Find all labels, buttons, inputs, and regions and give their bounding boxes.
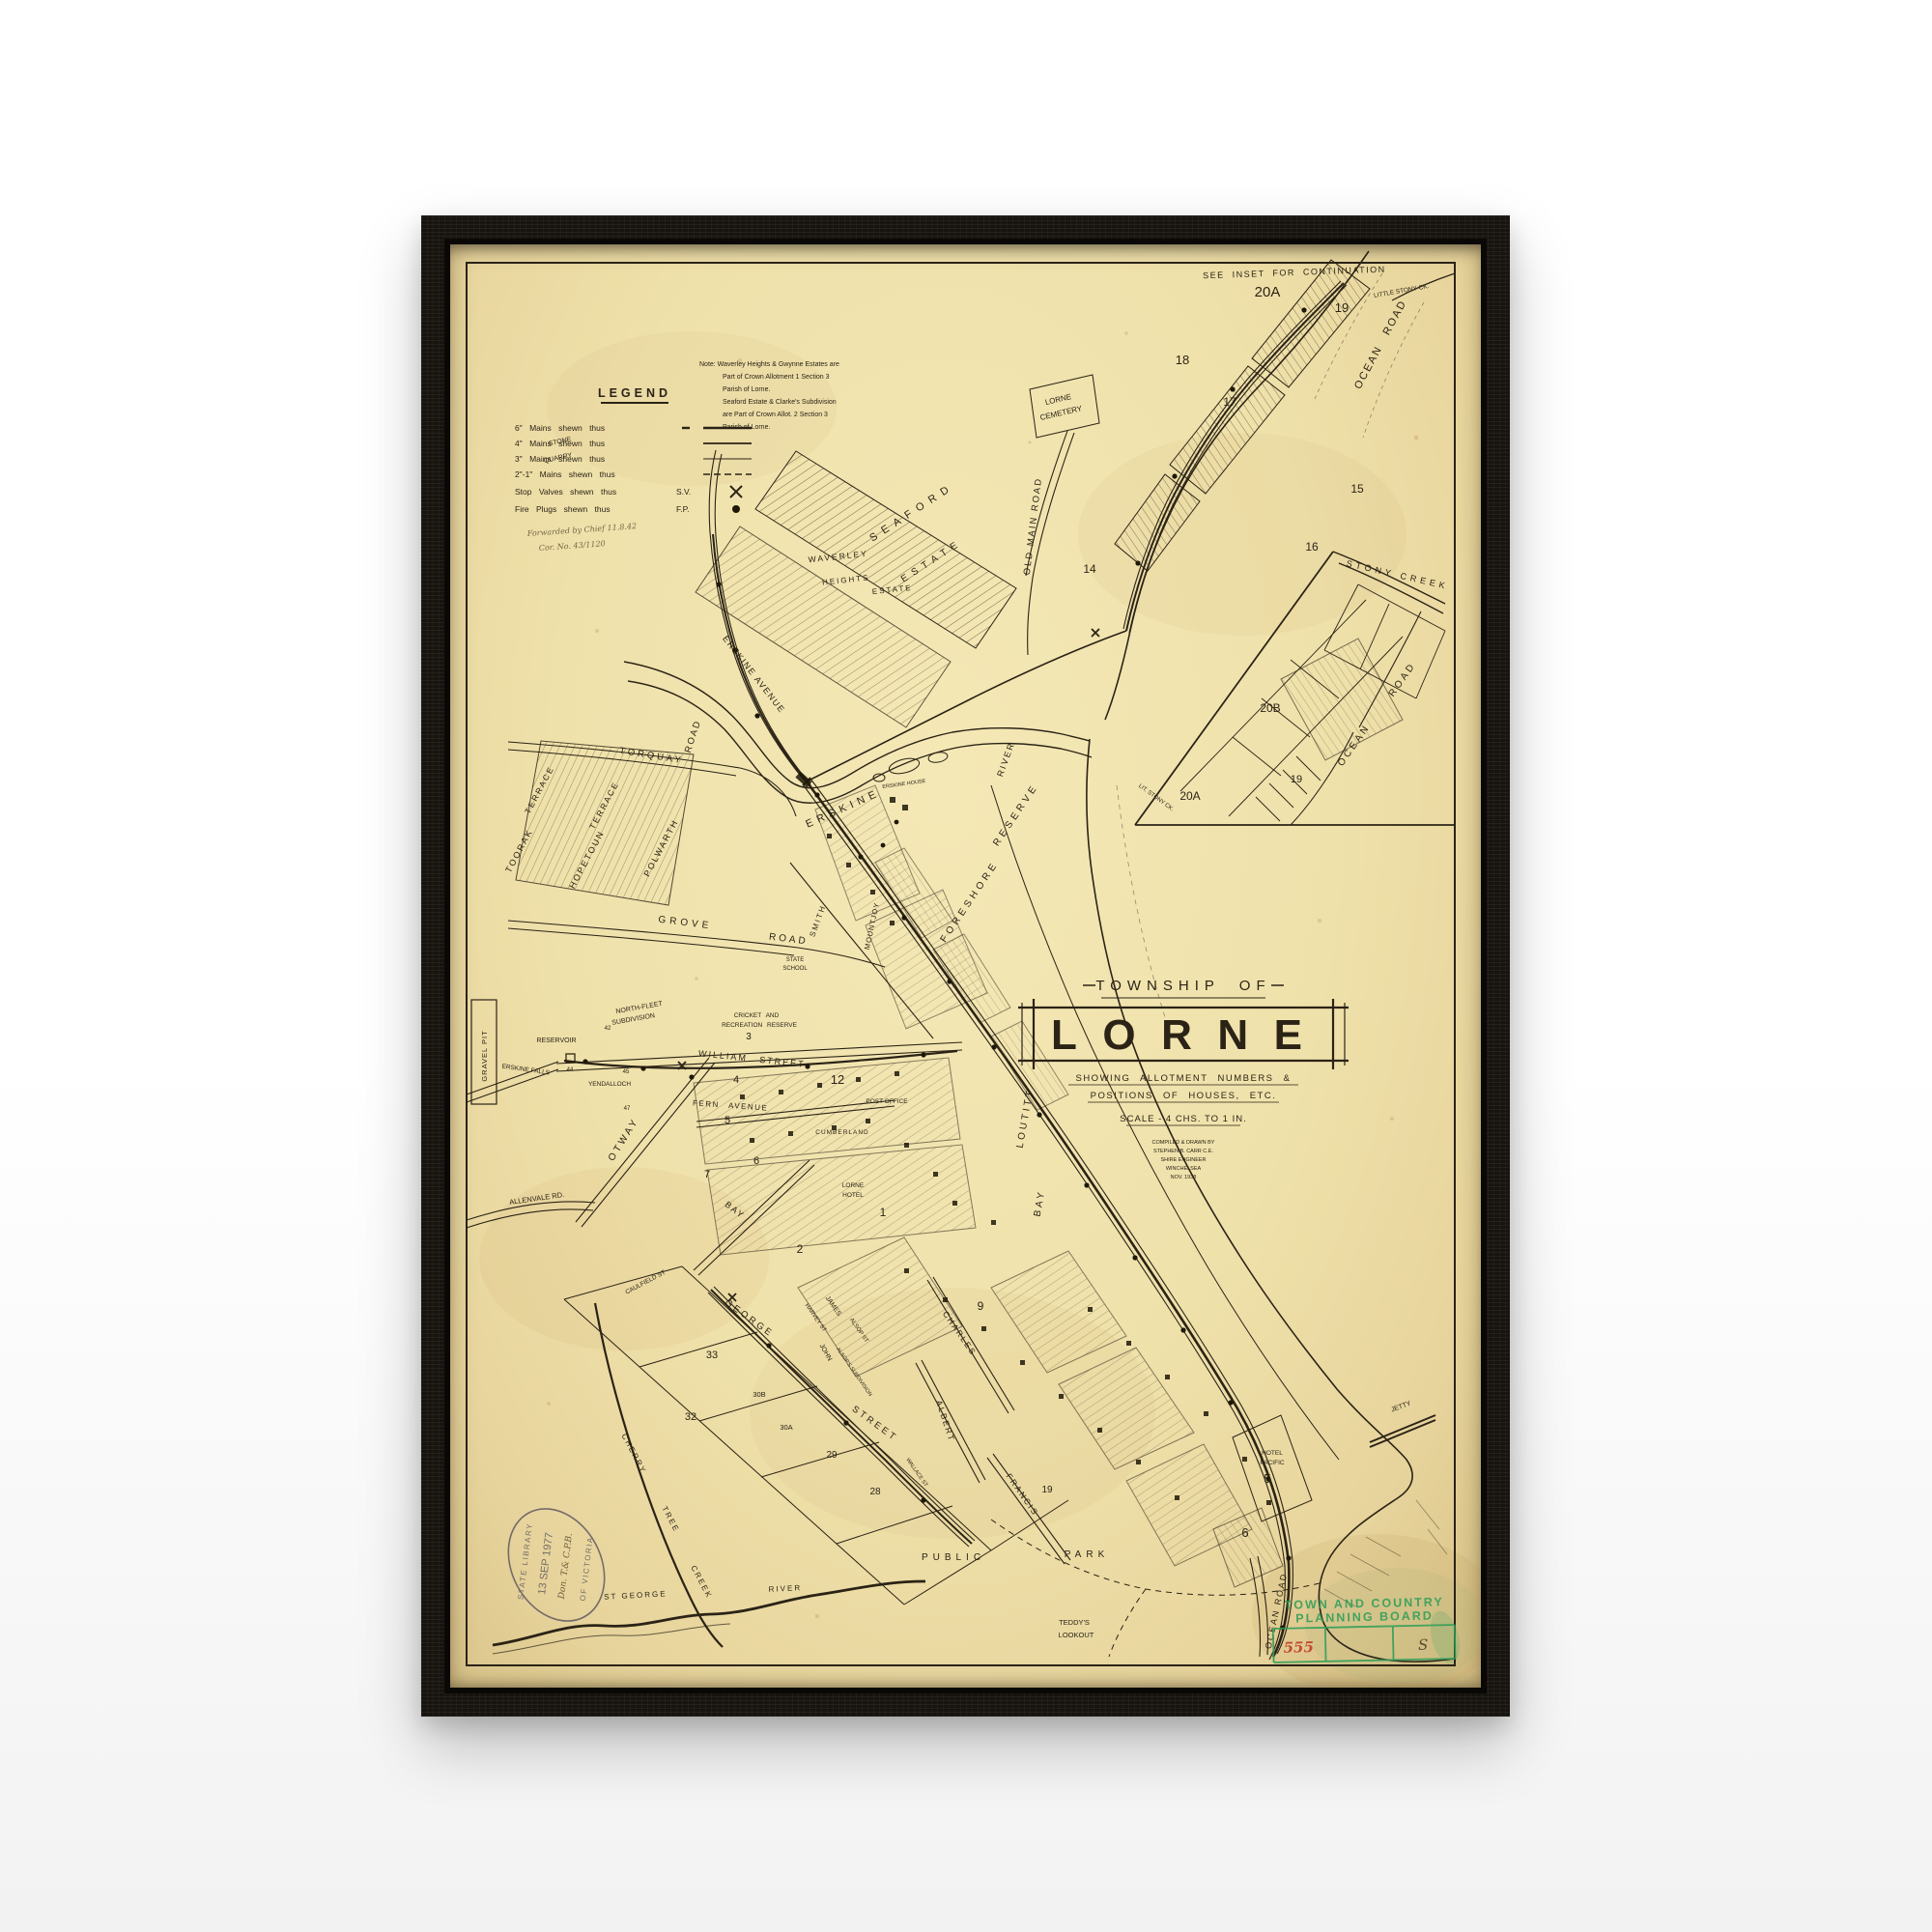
label-lot19: 19	[1041, 1485, 1053, 1495]
label-16: 16	[1305, 540, 1319, 554]
label-lot28: 28	[869, 1487, 881, 1497]
title-credit: WINCHELSEA	[1166, 1166, 1202, 1172]
product-photo: SEE INSET FOR CONTINUATION 20A 19 18 17 …	[0, 0, 1932, 1932]
label-inset-road: ROAD	[1387, 661, 1418, 699]
legend-row-label: Fire Plugs shewn thus	[515, 504, 611, 514]
legend-row-abbr: F.P.	[676, 504, 690, 514]
jetty-line	[1370, 1415, 1435, 1447]
label-otway: OTWAY	[607, 1116, 641, 1163]
label-heights: HEIGHTS	[822, 573, 870, 586]
label-lot29: 29	[826, 1450, 838, 1461]
label-creek: CREEK	[689, 1564, 714, 1600]
stamp-donation-note: Don. T.& C.P.B.	[557, 1532, 575, 1600]
legend-row-label: 6" Mains shewn thus	[515, 423, 605, 433]
state-library-stamp: STATE LIBRARY 13 SEP 1977 Don. T.& C.P.B…	[483, 1491, 626, 1641]
label-1: 1	[880, 1206, 887, 1219]
label-cricket-1: CRICKET AND	[734, 1012, 780, 1019]
label-7: 7	[704, 1169, 710, 1180]
label-inset-20a: 20A	[1179, 789, 1200, 803]
label-ocean-road-top: OCEAN ROAD	[1352, 298, 1409, 391]
label-hotel-pacific-2: PACIFIC	[1260, 1460, 1284, 1466]
label-3: 3	[746, 1032, 752, 1042]
label-cherry: CHERRY	[620, 1433, 648, 1476]
label-public: PUBLIC	[922, 1552, 985, 1563]
legend-heading: LEGEND	[598, 386, 671, 400]
label-gravel-pit: GRAVEL PIT	[480, 1030, 489, 1081]
label-cricket-2: RECREATION RESERVE	[722, 1022, 798, 1029]
picture-frame: SEE INSET FOR CONTINUATION 20A 19 18 17 …	[421, 215, 1510, 1717]
title-subtitle-1: SHOWING ALLOTMENT NUMBERS &	[1075, 1073, 1291, 1084]
label-lot33: 33	[706, 1350, 718, 1361]
label-old-main-road: OLD MAIN ROAD	[1022, 476, 1044, 576]
label-loutitt: LOUTITT	[1015, 1088, 1037, 1150]
label-lot42: 42	[605, 1026, 611, 1032]
label-reservoir: RESERVOIR	[536, 1037, 576, 1044]
label-yendalloch: YENDALLOCH	[588, 1081, 631, 1088]
label-teddys-2: LOOKOUT	[1059, 1631, 1094, 1639]
label-erskine-house: ERSKINE HOUSE	[882, 779, 926, 790]
label-17: 17	[1223, 395, 1236, 409]
note-line: Parish of Lorne.	[723, 424, 770, 431]
label-lorne-hotel-1: LORNE	[842, 1182, 865, 1189]
label-6: 6	[753, 1155, 759, 1167]
label-lorne-hotel-2: HOTEL	[842, 1192, 864, 1199]
label-lit-stony: LIT. STONY CK.	[1137, 783, 1175, 813]
label-lot45: 45	[623, 1069, 630, 1075]
stamp-date: 13 SEP 1977	[536, 1532, 555, 1596]
stamp-ref-number: 555	[1283, 1638, 1314, 1657]
label-inset-19: 19	[1291, 774, 1302, 785]
label-bay: BAY	[1033, 1189, 1048, 1218]
legend-row-label: 2"-1" Mains shewn thus	[515, 469, 615, 479]
label-erskine-falls: ERSKINE FALLS	[501, 1064, 551, 1077]
map-paper: SEE INSET FOR CONTINUATION 20A 19 18 17 …	[450, 244, 1481, 1688]
title-scale: SCALE - 4 CHS. TO 1 IN.	[1120, 1114, 1246, 1124]
label-18: 18	[1176, 353, 1189, 367]
label-9: 9	[978, 1299, 984, 1313]
shoreline-bay	[1087, 739, 1455, 1662]
legend-row-label: Stop Valves shewn thus	[515, 487, 616, 497]
label-15: 15	[1350, 482, 1364, 496]
label-st-george-river: RIVER	[768, 1583, 802, 1594]
label-lot30a: 30A	[780, 1423, 792, 1432]
title-subtitle-2: POSITIONS OF HOUSES, ETC.	[1091, 1091, 1277, 1101]
stamp-state-library: STATE LIBRARY	[516, 1522, 534, 1601]
label-smith: SMITH	[808, 903, 827, 938]
label-5: 5	[724, 1115, 730, 1126]
label-river: RIVER	[995, 741, 1016, 779]
label-lot30b: 30B	[753, 1390, 765, 1399]
label-state-school-2: SCHOOL	[782, 966, 808, 972]
stamp-letter-s: S	[1418, 1636, 1429, 1654]
label-grove: GROVE	[658, 915, 713, 932]
label-inset-20b: 20B	[1260, 701, 1280, 715]
title-township-of: TOWNSHIP OF	[1095, 978, 1270, 994]
label-teddys-1: TEDDY'S	[1059, 1618, 1090, 1627]
handwritten-note-1: Forwarded by Chief 11.8.42	[526, 522, 638, 538]
label-2: 2	[797, 1242, 804, 1256]
title-credit: COMPILED & DRAWN BY	[1152, 1140, 1215, 1146]
note-line: Part of Crown Allotment 1 Section 3	[723, 374, 830, 381]
note-line: Note: Waverley Heights & Gwynne Estates …	[699, 361, 839, 368]
label-cumberland: CUMBERLAND	[815, 1129, 869, 1136]
title-lorne: LORNE	[1051, 1011, 1316, 1059]
label-jetty: JETTY	[1390, 1401, 1412, 1414]
label-post-office: POST OFFICE	[866, 1098, 908, 1105]
label-cemetery-1: LORNE	[1044, 392, 1072, 407]
legend-row-abbr: S.V.	[676, 487, 691, 497]
stamp-line-2: PLANNING BOARD	[1295, 1608, 1434, 1625]
lorne-map: SEE INSET FOR CONTINUATION 20A 19 18 17 …	[450, 244, 1481, 1688]
handwritten-note-2: Cor. No. 43/1120	[539, 539, 606, 553]
label-14: 14	[1083, 562, 1096, 576]
label-torquay-road: ROAD	[683, 719, 703, 754]
erskine-river-bank2	[628, 681, 1092, 803]
label-lot32: 32	[685, 1411, 696, 1423]
title-credit: NOV. 1938	[1171, 1175, 1197, 1180]
note-line: are Part of Crown Allot. 2 Section 3	[723, 412, 828, 418]
title-credit: STEPHEN B. CARR C.E.	[1153, 1149, 1214, 1154]
label-state-school-1: STATE	[786, 957, 804, 963]
label-reserve: RESERVE	[991, 781, 1040, 848]
title-block: TOWNSHIP OF LORNE SHOWING ALLOTMENT NUMB…	[1018, 978, 1349, 1180]
note-line: Seaford Estate & Clarke's Subdivision	[723, 399, 837, 406]
label-lot44: 44	[567, 1067, 574, 1073]
label-12: 12	[831, 1072, 844, 1087]
legend-row-label: 3" Mains shewn thus	[515, 454, 605, 464]
label-tree: TREE	[660, 1505, 681, 1534]
label-6-low: 6	[1241, 1525, 1248, 1540]
label-hotel-pacific-1: HOTEL	[1262, 1450, 1283, 1457]
label-4: 4	[733, 1074, 739, 1086]
legend-handwriting: Forwarded by Chief 11.8.42 Cor. No. 43/1…	[526, 522, 638, 553]
label-see-inset: SEE INSET FOR CONTINUATION	[1203, 265, 1386, 281]
title-credit: SHIRE ENGINEER	[1160, 1157, 1206, 1163]
label-19-top: 19	[1335, 300, 1349, 315]
label-little-stony: LITTLE STONY CK.	[1374, 283, 1430, 299]
note-line: Parish of Lorne.	[723, 386, 770, 393]
stamp-of-victoria: OF VICTORIA	[579, 1536, 595, 1602]
stamp-oval-outline	[490, 1492, 624, 1638]
label-lot47: 47	[624, 1106, 631, 1112]
label-st-george: ST GEORGE	[604, 1589, 668, 1601]
legend-row-label: 4" Mains shewn thus	[515, 439, 605, 448]
label-north-fleet: NORTH-FLEET	[615, 1001, 664, 1016]
label-5-hotel: 5	[1264, 1471, 1270, 1486]
label-park: PARK	[1065, 1549, 1110, 1560]
label-20a-top: 20A	[1255, 284, 1281, 300]
